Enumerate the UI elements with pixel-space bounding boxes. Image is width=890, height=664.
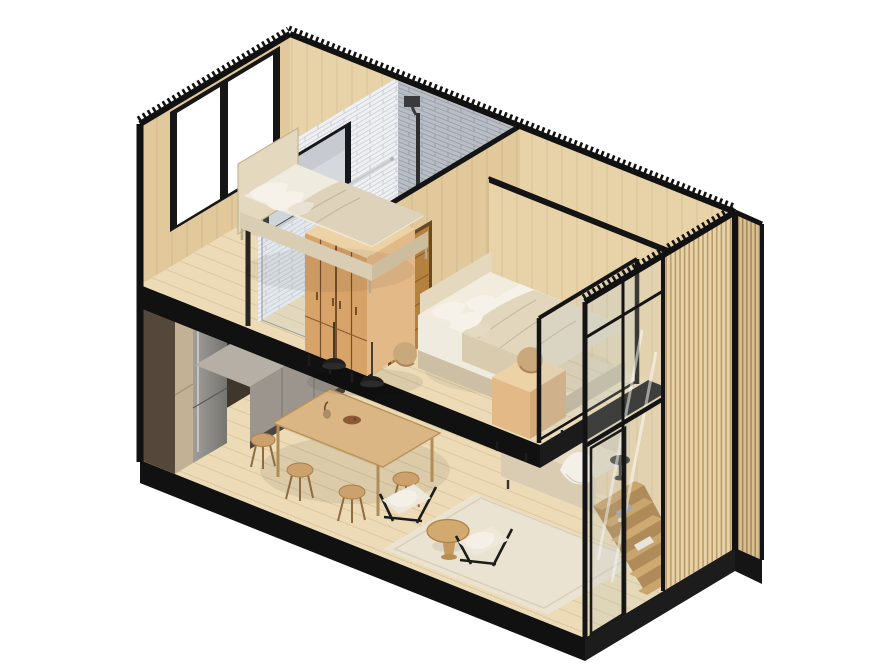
p endant-rim xyxy=(360,381,384,388)
coffee-foot xyxy=(441,554,457,560)
slat-wall xyxy=(663,212,735,591)
fruit xyxy=(353,417,357,421)
fruit-bowl xyxy=(343,416,361,425)
coffee-top xyxy=(427,520,469,543)
door-handle xyxy=(618,518,622,522)
rain-shower-head xyxy=(404,96,420,107)
pantry-cabinet xyxy=(175,311,193,474)
pendant-rim xyxy=(322,363,346,370)
door-pane xyxy=(591,428,625,634)
vase xyxy=(323,409,331,418)
cutaway-illustration xyxy=(0,0,890,664)
slat-fin-return xyxy=(735,212,762,560)
sliding-door xyxy=(591,428,625,634)
bar-clamp xyxy=(390,157,394,161)
kitchen-side-panel xyxy=(140,308,175,474)
fruit xyxy=(347,416,351,420)
